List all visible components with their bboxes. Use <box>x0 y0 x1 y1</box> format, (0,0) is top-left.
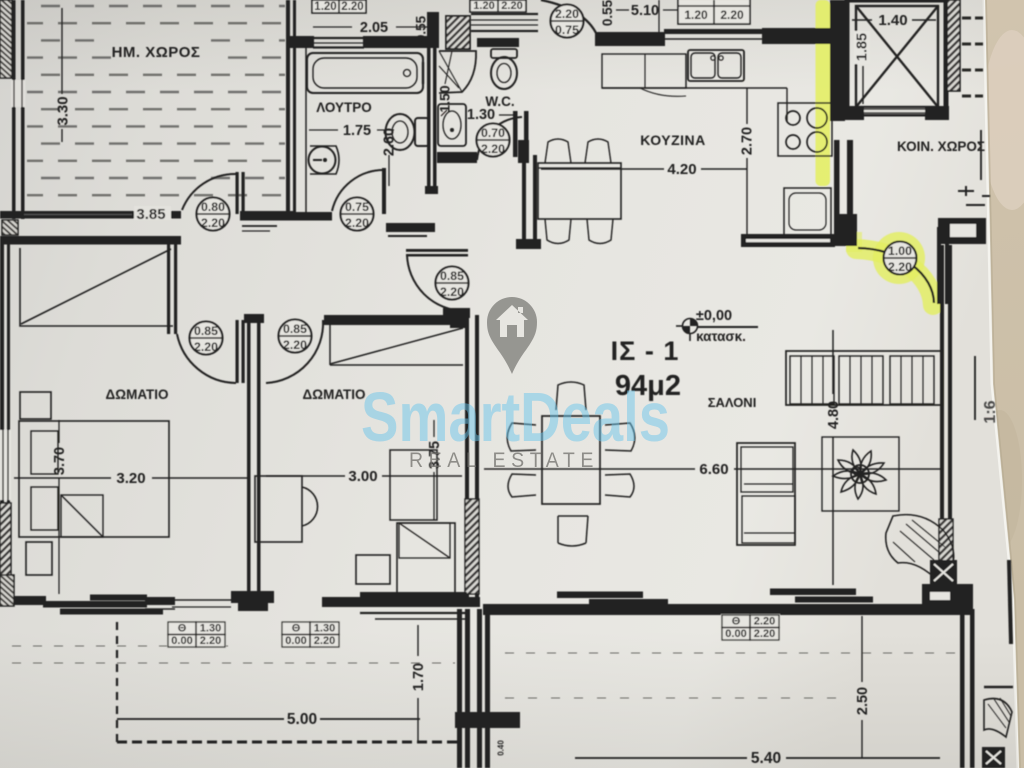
svg-text:±0,00: ±0,00 <box>696 308 732 324</box>
svg-text:0.40: 0.40 <box>497 740 506 756</box>
svg-text:1.30: 1.30 <box>467 107 495 123</box>
svg-text:0.00: 0.00 <box>285 635 306 647</box>
svg-text:5.40: 5.40 <box>751 750 781 767</box>
svg-text:2.20: 2.20 <box>555 7 579 21</box>
svg-text:0.55: 0.55 <box>600 0 615 26</box>
svg-text:ΙΣ - 1: ΙΣ - 1 <box>611 336 680 366</box>
svg-text:ΚΟΥΖΙΝΑ: ΚΟΥΖΙΝΑ <box>640 132 705 148</box>
svg-text:ΚΟΙΝ. ΧΩΡΟΣ: ΚΟΙΝ. ΧΩΡΟΣ <box>897 139 985 154</box>
svg-text:2.60: 2.60 <box>382 128 398 156</box>
svg-text:ΔΩΜΑΤΙΟ: ΔΩΜΑΤΙΟ <box>303 387 366 402</box>
svg-text:2.20: 2.20 <box>501 0 522 12</box>
svg-text:0.00: 0.00 <box>171 635 192 647</box>
svg-text:2.20: 2.20 <box>888 260 912 274</box>
svg-text:1.75: 1.75 <box>343 123 371 139</box>
svg-text:2.20: 2.20 <box>345 216 369 230</box>
svg-text:2.20: 2.20 <box>341 1 363 13</box>
svg-text:0.85: 0.85 <box>194 324 218 338</box>
svg-text:0.75: 0.75 <box>345 200 369 214</box>
svg-text:2.20: 2.20 <box>283 338 307 352</box>
svg-text:0.55: 0.55 <box>414 15 429 42</box>
svg-text:3.30: 3.30 <box>55 96 72 125</box>
svg-text:ΔΩΜΑΤΙΟ: ΔΩΜΑΤΙΟ <box>106 387 169 402</box>
svg-text:Θ: Θ <box>292 623 301 635</box>
svg-text:1.30: 1.30 <box>314 623 335 635</box>
svg-text:ΛΟΥΤΡΟ: ΛΟΥΤΡΟ <box>316 100 372 115</box>
svg-text:5.10: 5.10 <box>631 3 659 19</box>
svg-text:2.20: 2.20 <box>200 635 221 647</box>
svg-text:0.80: 0.80 <box>201 200 225 214</box>
svg-text:ΗΜ. ΧΩΡΟΣ: ΗΜ. ΧΩΡΟΣ <box>112 44 201 61</box>
svg-text:1.40: 1.40 <box>878 12 907 29</box>
svg-text:0.85: 0.85 <box>283 322 307 336</box>
svg-text:REAL ESTATE: REAL ESTATE <box>409 449 599 472</box>
svg-text:5.00: 5.00 <box>287 711 317 728</box>
svg-text:6.60: 6.60 <box>699 461 728 478</box>
svg-text:SmartDeals: SmartDeals <box>361 378 670 456</box>
svg-text:0.75: 0.75 <box>555 23 579 37</box>
svg-text:2.20: 2.20 <box>440 285 464 299</box>
svg-text:1.20: 1.20 <box>314 1 336 13</box>
svg-text:2.20: 2.20 <box>314 635 335 647</box>
svg-text:2.20: 2.20 <box>754 616 775 628</box>
svg-text:2.20: 2.20 <box>754 628 775 640</box>
svg-text:3.20: 3.20 <box>116 470 145 487</box>
svg-text:0.00: 0.00 <box>725 628 746 640</box>
svg-text:4.20: 4.20 <box>667 161 696 178</box>
svg-text:1:6: 1:6 <box>982 400 999 423</box>
svg-text:2.05: 2.05 <box>360 20 388 36</box>
svg-text:2.20: 2.20 <box>720 8 744 22</box>
svg-text:4.80: 4.80 <box>826 401 842 429</box>
svg-text:1.20: 1.20 <box>473 0 494 12</box>
svg-text:Θ: Θ <box>178 623 187 635</box>
svg-text:1.30: 1.30 <box>200 623 221 635</box>
svg-text:ΣΑΛΟΝΙ: ΣΑΛΟΝΙ <box>708 395 757 410</box>
svg-text:3.70: 3.70 <box>52 447 68 475</box>
svg-text:1.70: 1.70 <box>411 663 427 691</box>
svg-text:0.85: 0.85 <box>440 269 464 283</box>
svg-text:2.50: 2.50 <box>855 687 871 715</box>
svg-text:3.85: 3.85 <box>136 206 165 223</box>
svg-text:3.00: 3.00 <box>348 468 377 485</box>
svg-text:1.00: 1.00 <box>888 244 912 258</box>
svg-text:1.20: 1.20 <box>684 8 708 22</box>
svg-text:κατασκ.: κατασκ. <box>696 329 746 344</box>
svg-text:2.20: 2.20 <box>194 340 218 354</box>
svg-text:0.70: 0.70 <box>481 126 505 140</box>
svg-text:2.20: 2.20 <box>201 216 225 230</box>
svg-text:1.85: 1.85 <box>855 33 871 61</box>
svg-text:2.70: 2.70 <box>740 127 756 155</box>
svg-text:2.20: 2.20 <box>481 142 505 156</box>
svg-text:Θ: Θ <box>732 616 741 628</box>
